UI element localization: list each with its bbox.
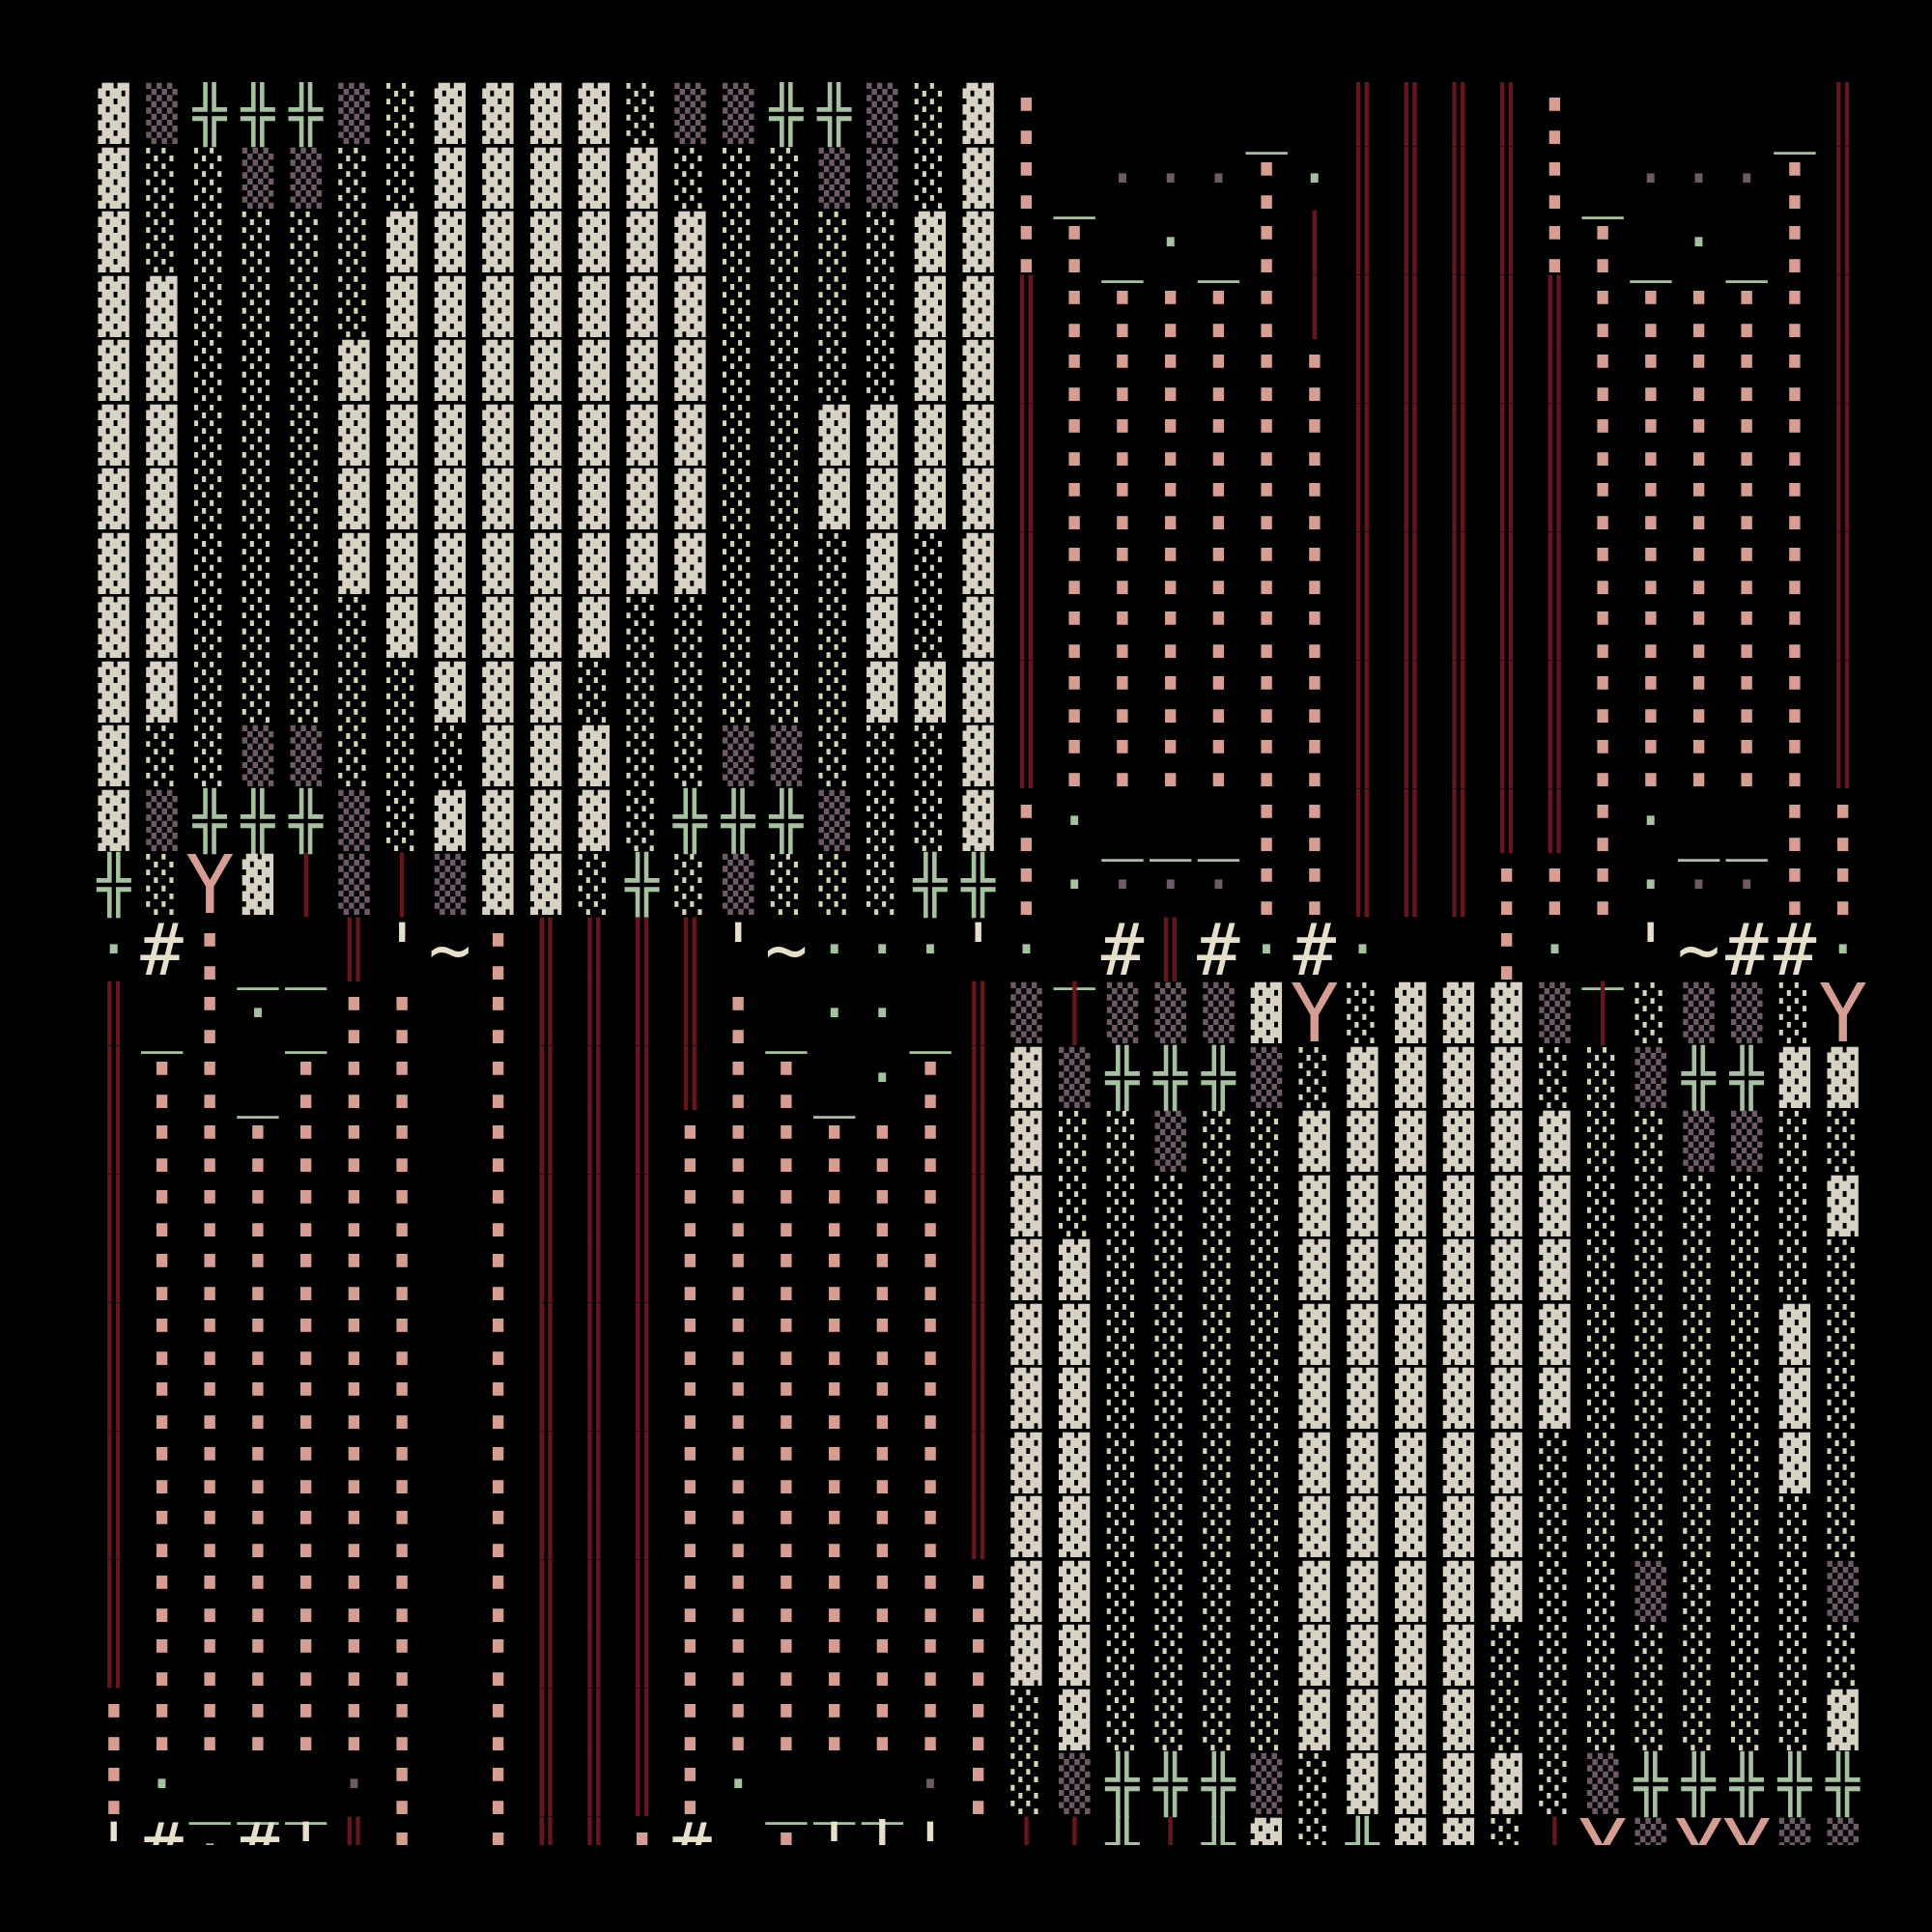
grid-cell: ░ bbox=[1242, 1432, 1291, 1496]
grid-cell: ░ bbox=[1147, 1238, 1195, 1303]
grid-cell: ▒ bbox=[1675, 1110, 1723, 1175]
grid-cell: ' bbox=[954, 918, 1003, 982]
grid-cell: ║ bbox=[1483, 275, 1531, 340]
grid-cell bbox=[1050, 82, 1098, 147]
grid-cell: ▓ bbox=[1050, 1689, 1098, 1753]
grid-cell: ░ bbox=[330, 724, 379, 789]
grid-cell: ▓ bbox=[522, 853, 570, 918]
grid-cell: ░ bbox=[1627, 1495, 1675, 1560]
grid-cell: ░ bbox=[810, 211, 859, 275]
grid-cell bbox=[426, 1110, 474, 1175]
grid-cell: ▓ bbox=[1483, 1560, 1531, 1625]
grid-cell: ║ bbox=[667, 918, 715, 982]
grid-cell: ░ bbox=[1578, 1495, 1627, 1560]
grid-cell: ▒ bbox=[1098, 981, 1147, 1046]
grid-cell: ║ bbox=[1003, 468, 1051, 532]
grid-cell: ▓ bbox=[618, 147, 667, 212]
grid-cell: ║ bbox=[1339, 147, 1387, 212]
grid-cell: ▓ bbox=[138, 404, 186, 469]
grid-cell: ░ bbox=[185, 275, 234, 340]
grid-cell: : bbox=[234, 1689, 282, 1753]
grid-cell: ▓ bbox=[90, 147, 138, 212]
grid-cell: ░ bbox=[1771, 1560, 1819, 1625]
grid-cell: ▓ bbox=[1050, 1560, 1098, 1625]
grid-cell: ║ bbox=[522, 1303, 570, 1368]
grid-cell: ╬ bbox=[1195, 1046, 1243, 1111]
grid-cell: ║ bbox=[1435, 789, 1483, 854]
grid-cell bbox=[426, 1303, 474, 1368]
grid-cell: ▓ bbox=[570, 468, 618, 532]
grid-cell: ║ bbox=[570, 918, 618, 982]
grid-cell: ▓ bbox=[859, 404, 907, 469]
grid-cell: ▓ bbox=[1291, 1495, 1339, 1560]
grid-cell bbox=[426, 1367, 474, 1432]
grid-cell: _ bbox=[1722, 789, 1771, 854]
grid-cell: # bbox=[1098, 918, 1147, 982]
grid-cell: ▒ bbox=[1627, 1046, 1675, 1111]
grid-cell: ░ bbox=[762, 339, 810, 404]
grid-cell: ░ bbox=[282, 339, 330, 404]
grid-cell: ║ bbox=[570, 1303, 618, 1368]
grid-cell: ▒ bbox=[762, 724, 810, 789]
grid-cell: ░ bbox=[1147, 1495, 1195, 1560]
grid-cell: ▓ bbox=[1339, 1752, 1387, 1817]
grid-cell: ║ bbox=[522, 1046, 570, 1111]
grid-cell: ░ bbox=[1050, 1175, 1098, 1239]
grid-cell: ║ bbox=[522, 1817, 570, 1846]
grid-cell: ░ bbox=[378, 661, 426, 725]
grid-cell: ▓ bbox=[1483, 1432, 1531, 1496]
grid-cell: ║ bbox=[1339, 596, 1387, 661]
grid-cell: ▒ bbox=[1195, 981, 1243, 1046]
grid-cell: ▓ bbox=[1003, 1046, 1051, 1111]
grid-cell: ▓ bbox=[1291, 1689, 1339, 1753]
grid-cell: ░ bbox=[1291, 1752, 1339, 1817]
grid-cell: ░ bbox=[1722, 1367, 1771, 1432]
grid-cell: ╬ bbox=[1722, 1046, 1771, 1111]
grid-cell: ▓ bbox=[1771, 1432, 1819, 1496]
grid-cell: : bbox=[1195, 724, 1243, 789]
grid-cell: ▒ bbox=[282, 724, 330, 789]
grid-cell: ▓ bbox=[90, 82, 138, 147]
grid-cell: ╬ bbox=[762, 82, 810, 147]
grid-cell: ▒ bbox=[282, 147, 330, 212]
grid-cell: Y bbox=[1578, 1817, 1627, 1846]
grid-cell: ▒ bbox=[1819, 1560, 1867, 1625]
grid-cell: ▓ bbox=[1386, 1689, 1435, 1753]
grid-cell bbox=[426, 1689, 474, 1753]
grid-cell: ▓ bbox=[1386, 1560, 1435, 1625]
grid-cell: ░ bbox=[1242, 1175, 1291, 1239]
grid-cell: ║ bbox=[570, 1817, 618, 1846]
grid-cell: · bbox=[1291, 147, 1339, 212]
grid-cell: ░ bbox=[185, 211, 234, 275]
grid-cell: ▓ bbox=[474, 468, 523, 532]
grid-cell: ║ bbox=[954, 1432, 1003, 1496]
grid-cell: ▓ bbox=[522, 211, 570, 275]
grid-cell: ░ bbox=[1531, 1495, 1579, 1560]
grid-cell: ░ bbox=[714, 211, 762, 275]
grid-cell: ░ bbox=[1578, 1560, 1627, 1625]
grid-cell: ║ bbox=[522, 1689, 570, 1753]
grid-cell: ░ bbox=[762, 661, 810, 725]
grid-cell: ░ bbox=[1771, 1624, 1819, 1689]
grid-cell: ░ bbox=[1003, 1689, 1051, 1753]
grid-cell: ' bbox=[1627, 918, 1675, 982]
grid-cell: ░ bbox=[1627, 981, 1675, 1046]
grid-cell: ░ bbox=[667, 661, 715, 725]
grid-cell: ░ bbox=[762, 532, 810, 597]
grid-cell: ║ bbox=[90, 981, 138, 1046]
grid-cell: ▓ bbox=[1483, 1752, 1531, 1817]
grid-cell: ░ bbox=[1578, 1110, 1627, 1175]
grid-cell: ║ bbox=[522, 1624, 570, 1689]
grid-cell: ║ bbox=[1483, 468, 1531, 532]
grid-cell: ▓ bbox=[1291, 1560, 1339, 1625]
grid-cell: · bbox=[1003, 918, 1051, 982]
grid-cell: Y bbox=[1722, 1817, 1771, 1846]
grid-cell: ╬ bbox=[667, 789, 715, 854]
grid-cell: ║ bbox=[667, 981, 715, 1046]
grid-cell: ▓ bbox=[426, 404, 474, 469]
grid-cell: ▓ bbox=[570, 147, 618, 212]
grid-cell: ▓ bbox=[1435, 1110, 1483, 1175]
grid-cell: ▓ bbox=[570, 724, 618, 789]
grid-cell: ░ bbox=[185, 404, 234, 469]
grid-cell: ║ bbox=[618, 1495, 667, 1560]
grid-cell: ╬ bbox=[282, 789, 330, 854]
grid-cell: ▓ bbox=[426, 147, 474, 212]
grid-cell: ╬ bbox=[810, 82, 859, 147]
grid-cell: ▓ bbox=[667, 339, 715, 404]
grid-cell bbox=[426, 1624, 474, 1689]
grid-cell: ░ bbox=[234, 404, 282, 469]
grid-cell: ║ bbox=[1483, 211, 1531, 275]
grid-cell: ▓ bbox=[570, 596, 618, 661]
grid-cell: ░ bbox=[234, 275, 282, 340]
grid-cell: ╬ bbox=[1098, 1752, 1147, 1817]
grid-cell: : bbox=[330, 1689, 379, 1753]
grid-cell: : bbox=[282, 1689, 330, 1753]
grid-cell: ▓ bbox=[1339, 1303, 1387, 1368]
grid-cell: ▓ bbox=[1003, 1175, 1051, 1239]
grid-cell: ▓ bbox=[1386, 1238, 1435, 1303]
grid-cell: ▓ bbox=[1291, 1367, 1339, 1432]
grid-cell: ░ bbox=[1195, 1238, 1243, 1303]
grid-cell: ║ bbox=[1003, 404, 1051, 469]
grid-cell: ░ bbox=[1578, 1432, 1627, 1496]
grid-cell: ║ bbox=[1339, 789, 1387, 854]
grid-cell: ▒ bbox=[1722, 1110, 1771, 1175]
grid-cell: : bbox=[1242, 853, 1291, 918]
grid-cell bbox=[1386, 918, 1435, 982]
grid-cell: ║ bbox=[1435, 275, 1483, 340]
grid-cell: ░ bbox=[1578, 1624, 1627, 1689]
grid-cell: ║ bbox=[1339, 339, 1387, 404]
grid-cell: ░ bbox=[1675, 1175, 1723, 1239]
grid-cell: │ bbox=[1531, 1817, 1579, 1846]
grid-cell: ░ bbox=[1483, 1624, 1531, 1689]
grid-cell: ░ bbox=[810, 724, 859, 789]
grid-cell: ░ bbox=[1627, 1303, 1675, 1368]
grid-cell: ░ bbox=[1147, 1624, 1195, 1689]
grid-cell: ░ bbox=[1819, 1238, 1867, 1303]
grid-cell: ░ bbox=[618, 82, 667, 147]
grid-cell: ╬ bbox=[1675, 1046, 1723, 1111]
grid-cell: ▓ bbox=[1386, 1752, 1435, 1817]
grid-cell: ▓ bbox=[1291, 1238, 1339, 1303]
grid-cell: ▓ bbox=[1291, 1303, 1339, 1368]
grid-cell: ▒ bbox=[330, 789, 379, 854]
grid-cell: · bbox=[1098, 147, 1147, 212]
grid-cell: ░ bbox=[234, 532, 282, 597]
grid-cell: ▒ bbox=[1147, 1110, 1195, 1175]
grid-cell: : bbox=[1627, 724, 1675, 789]
grid-cell bbox=[714, 1817, 762, 1846]
grid-cell: · bbox=[1195, 147, 1243, 212]
grid-cell: │ bbox=[282, 853, 330, 918]
grid-cell: ░ bbox=[1578, 1238, 1627, 1303]
grid-cell: ░ bbox=[714, 532, 762, 597]
grid-cell: ▓ bbox=[1339, 1238, 1387, 1303]
grid-cell: │ bbox=[1050, 981, 1098, 1046]
grid-cell: ▓ bbox=[1531, 1110, 1579, 1175]
grid-cell: ░ bbox=[859, 853, 907, 918]
grid-cell: ▓ bbox=[474, 596, 523, 661]
grid-cell: ▓ bbox=[1003, 1303, 1051, 1368]
grid-cell: ║ bbox=[1531, 532, 1579, 597]
grid-cell: ░ bbox=[714, 468, 762, 532]
grid-cell: : bbox=[1531, 853, 1579, 918]
grid-cell: : bbox=[1675, 724, 1723, 789]
grid-cell: ║ bbox=[618, 1303, 667, 1368]
grid-cell: ▓ bbox=[138, 339, 186, 404]
grid-cell: ▓ bbox=[522, 724, 570, 789]
grid-cell: ▓ bbox=[1771, 1046, 1819, 1111]
grid-cell: _ bbox=[282, 918, 330, 982]
grid-cell: ░ bbox=[1722, 1303, 1771, 1368]
grid-cell: ▒ bbox=[138, 789, 186, 854]
grid-cell: ▓ bbox=[1386, 1432, 1435, 1496]
grid-cell: ▓ bbox=[1339, 1495, 1387, 1560]
grid-cell: ▒ bbox=[330, 853, 379, 918]
grid-cell bbox=[1291, 82, 1339, 147]
grid-cell: ║ bbox=[522, 1495, 570, 1560]
grid-cell: · bbox=[1050, 853, 1098, 918]
grid-cell: ▒ bbox=[330, 82, 379, 147]
grid-cell: ░ bbox=[1578, 1367, 1627, 1432]
grid-cell: ▒ bbox=[1531, 981, 1579, 1046]
grid-cell: ~ bbox=[426, 918, 474, 982]
grid-cell: ╬ bbox=[1195, 1752, 1243, 1817]
grid-cell: ║ bbox=[1531, 339, 1579, 404]
grid-cell: ▓ bbox=[570, 275, 618, 340]
grid-cell: ░ bbox=[426, 724, 474, 789]
grid-cell: ║ bbox=[1435, 211, 1483, 275]
grid-cell: · bbox=[234, 981, 282, 1046]
grid-cell: ▓ bbox=[1242, 981, 1291, 1046]
grid-cell: ░ bbox=[1627, 1238, 1675, 1303]
grid-cell: ╬ bbox=[90, 853, 138, 918]
grid-cell: : bbox=[762, 1817, 810, 1846]
grid-cell: ▓ bbox=[954, 532, 1003, 597]
grid-cell: ▓ bbox=[1819, 1046, 1867, 1111]
grid-cell: ║ bbox=[522, 981, 570, 1046]
grid-cell: ║ bbox=[1339, 404, 1387, 469]
grid-cell: ║ bbox=[618, 1046, 667, 1111]
grid-cell: ▒ bbox=[859, 147, 907, 212]
grid-cell: ░ bbox=[1003, 1752, 1051, 1817]
grid-cell: ▓ bbox=[906, 339, 954, 404]
grid-cell: ║ bbox=[1435, 724, 1483, 789]
grid-cell: · bbox=[330, 1752, 379, 1817]
grid-cell: ░ bbox=[282, 661, 330, 725]
grid-cell: ║ bbox=[522, 1238, 570, 1303]
grid-cell: ▓ bbox=[618, 404, 667, 469]
grid-cell: ░ bbox=[1578, 1175, 1627, 1239]
grid-cell: ░ bbox=[618, 661, 667, 725]
grid-cell: ║ bbox=[1003, 275, 1051, 340]
grid-cell: ░ bbox=[714, 275, 762, 340]
grid-cell: ▓ bbox=[954, 404, 1003, 469]
grid-cell: ░ bbox=[810, 661, 859, 725]
grid-cell: : bbox=[1050, 724, 1098, 789]
grid-cell: ░ bbox=[378, 147, 426, 212]
grid-cell: ░ bbox=[1675, 1560, 1723, 1625]
grid-cell: ░ bbox=[762, 275, 810, 340]
grid-cell: ║ bbox=[1483, 339, 1531, 404]
grid-cell: · bbox=[859, 918, 907, 982]
grid-cell: : bbox=[1147, 724, 1195, 789]
grid-cell: ║ bbox=[90, 1432, 138, 1496]
grid-cell: ║ bbox=[1531, 468, 1579, 532]
grid-cell: ▓ bbox=[618, 275, 667, 340]
grid-cell: ~ bbox=[762, 918, 810, 982]
grid-cell: ░ bbox=[1722, 1560, 1771, 1625]
grid-cell: ░ bbox=[138, 147, 186, 212]
grid-cell: ▓ bbox=[1003, 1110, 1051, 1175]
grid-cell: ║ bbox=[570, 1046, 618, 1111]
grid-cell: │ bbox=[1578, 981, 1627, 1046]
grid-cell: ░ bbox=[1771, 1495, 1819, 1560]
grid-cell: ║ bbox=[1819, 339, 1867, 404]
grid-cell bbox=[426, 981, 474, 1046]
grid-cell: ▒ bbox=[234, 724, 282, 789]
grid-cell: : bbox=[1003, 211, 1051, 275]
grid-cell: ▓ bbox=[1483, 1495, 1531, 1560]
grid-cell: ╬ bbox=[618, 853, 667, 918]
grid-cell: ▒ bbox=[1050, 1752, 1098, 1817]
grid-cell: ▓ bbox=[474, 404, 523, 469]
grid-cell: ▓ bbox=[138, 661, 186, 725]
grid-cell: ▒ bbox=[714, 82, 762, 147]
grid-cell: ▓ bbox=[378, 596, 426, 661]
grid-cell: ░ bbox=[1147, 1560, 1195, 1625]
grid-cell: · bbox=[90, 918, 138, 982]
grid-cell: ░ bbox=[1627, 1624, 1675, 1689]
grid-cell: ║ bbox=[1819, 661, 1867, 725]
grid-cell: ║ bbox=[1819, 404, 1867, 469]
grid-cell: ▓ bbox=[1531, 1303, 1579, 1368]
grid-cell: ║ bbox=[1531, 596, 1579, 661]
grid-cell: ▓ bbox=[1386, 1495, 1435, 1560]
grid-cell: ╬ bbox=[282, 82, 330, 147]
grid-cell: ░ bbox=[1242, 1367, 1291, 1432]
grid-cell: ▒ bbox=[1771, 1817, 1819, 1846]
grid-cell: │ bbox=[1050, 1817, 1098, 1846]
grid-cell: ║ bbox=[90, 1175, 138, 1239]
grid-cell: Y bbox=[1675, 1817, 1723, 1846]
grid-cell: : bbox=[810, 1689, 859, 1753]
grid-cell: ▓ bbox=[667, 532, 715, 597]
grid-cell: ║ bbox=[1386, 468, 1435, 532]
grid-cell: ░ bbox=[1195, 1303, 1243, 1368]
grid-cell: ║ bbox=[1339, 532, 1387, 597]
grid-cell: : bbox=[1098, 724, 1147, 789]
grid-cell: ░ bbox=[1531, 1624, 1579, 1689]
grid-cell: ▓ bbox=[1435, 1238, 1483, 1303]
grid-cell: ░ bbox=[234, 661, 282, 725]
grid-cell: ░ bbox=[570, 661, 618, 725]
grid-cell: ▒ bbox=[1722, 981, 1771, 1046]
grid-cell: ║ bbox=[618, 1367, 667, 1432]
grid-cell: ░ bbox=[1098, 1624, 1147, 1689]
grid-cell: ║ bbox=[1386, 404, 1435, 469]
grid-cell: ░ bbox=[810, 339, 859, 404]
grid-cell: ░ bbox=[185, 596, 234, 661]
grid-cell: : bbox=[618, 1817, 667, 1846]
grid-cell: ▓ bbox=[522, 339, 570, 404]
grid-cell: ░ bbox=[378, 789, 426, 854]
grid-cell: ▓ bbox=[667, 404, 715, 469]
grid-cell: ▓ bbox=[954, 82, 1003, 147]
grid-cell: ░ bbox=[1147, 1367, 1195, 1432]
grid-cell: ▓ bbox=[90, 339, 138, 404]
grid-cell: ░ bbox=[1483, 1689, 1531, 1753]
grid-cell: ░ bbox=[714, 596, 762, 661]
grid-cell: ▓ bbox=[954, 211, 1003, 275]
grid-cell: ░ bbox=[185, 661, 234, 725]
grid-cell: ▓ bbox=[1483, 1046, 1531, 1111]
grid-cell: ░ bbox=[282, 275, 330, 340]
grid-cell: ░ bbox=[1675, 1238, 1723, 1303]
grid-cell: ▓ bbox=[954, 468, 1003, 532]
grid-cell: ║ bbox=[1339, 724, 1387, 789]
grid-cell: ▓ bbox=[1483, 1303, 1531, 1368]
grid-cell: ╬ bbox=[234, 82, 282, 147]
grid-cell: ░ bbox=[906, 82, 954, 147]
grid-cell: ▓ bbox=[522, 468, 570, 532]
grid-cell: ▒ bbox=[234, 147, 282, 212]
grid-cell: ░ bbox=[1195, 1175, 1243, 1239]
grid-cell: ░ bbox=[234, 596, 282, 661]
grid-cell bbox=[426, 1046, 474, 1111]
grid-cell: ░ bbox=[1675, 1495, 1723, 1560]
grid-cell bbox=[1147, 82, 1195, 147]
grid-cell: ▓ bbox=[1435, 1817, 1483, 1846]
grid-cell: ▓ bbox=[1339, 1560, 1387, 1625]
grid-cell: ▓ bbox=[1339, 1432, 1387, 1496]
grid-cell: ░ bbox=[282, 468, 330, 532]
grid-cell: ║ bbox=[90, 1495, 138, 1560]
grid-cell: ║ bbox=[1339, 661, 1387, 725]
grid-cell: ░ bbox=[282, 211, 330, 275]
grid-cell: ░ bbox=[714, 661, 762, 725]
grid-cell: ░ bbox=[1291, 1046, 1339, 1111]
grid-cell: ▓ bbox=[522, 82, 570, 147]
grid-cell: ║ bbox=[522, 1752, 570, 1817]
grid-cell: ▓ bbox=[1386, 1367, 1435, 1432]
